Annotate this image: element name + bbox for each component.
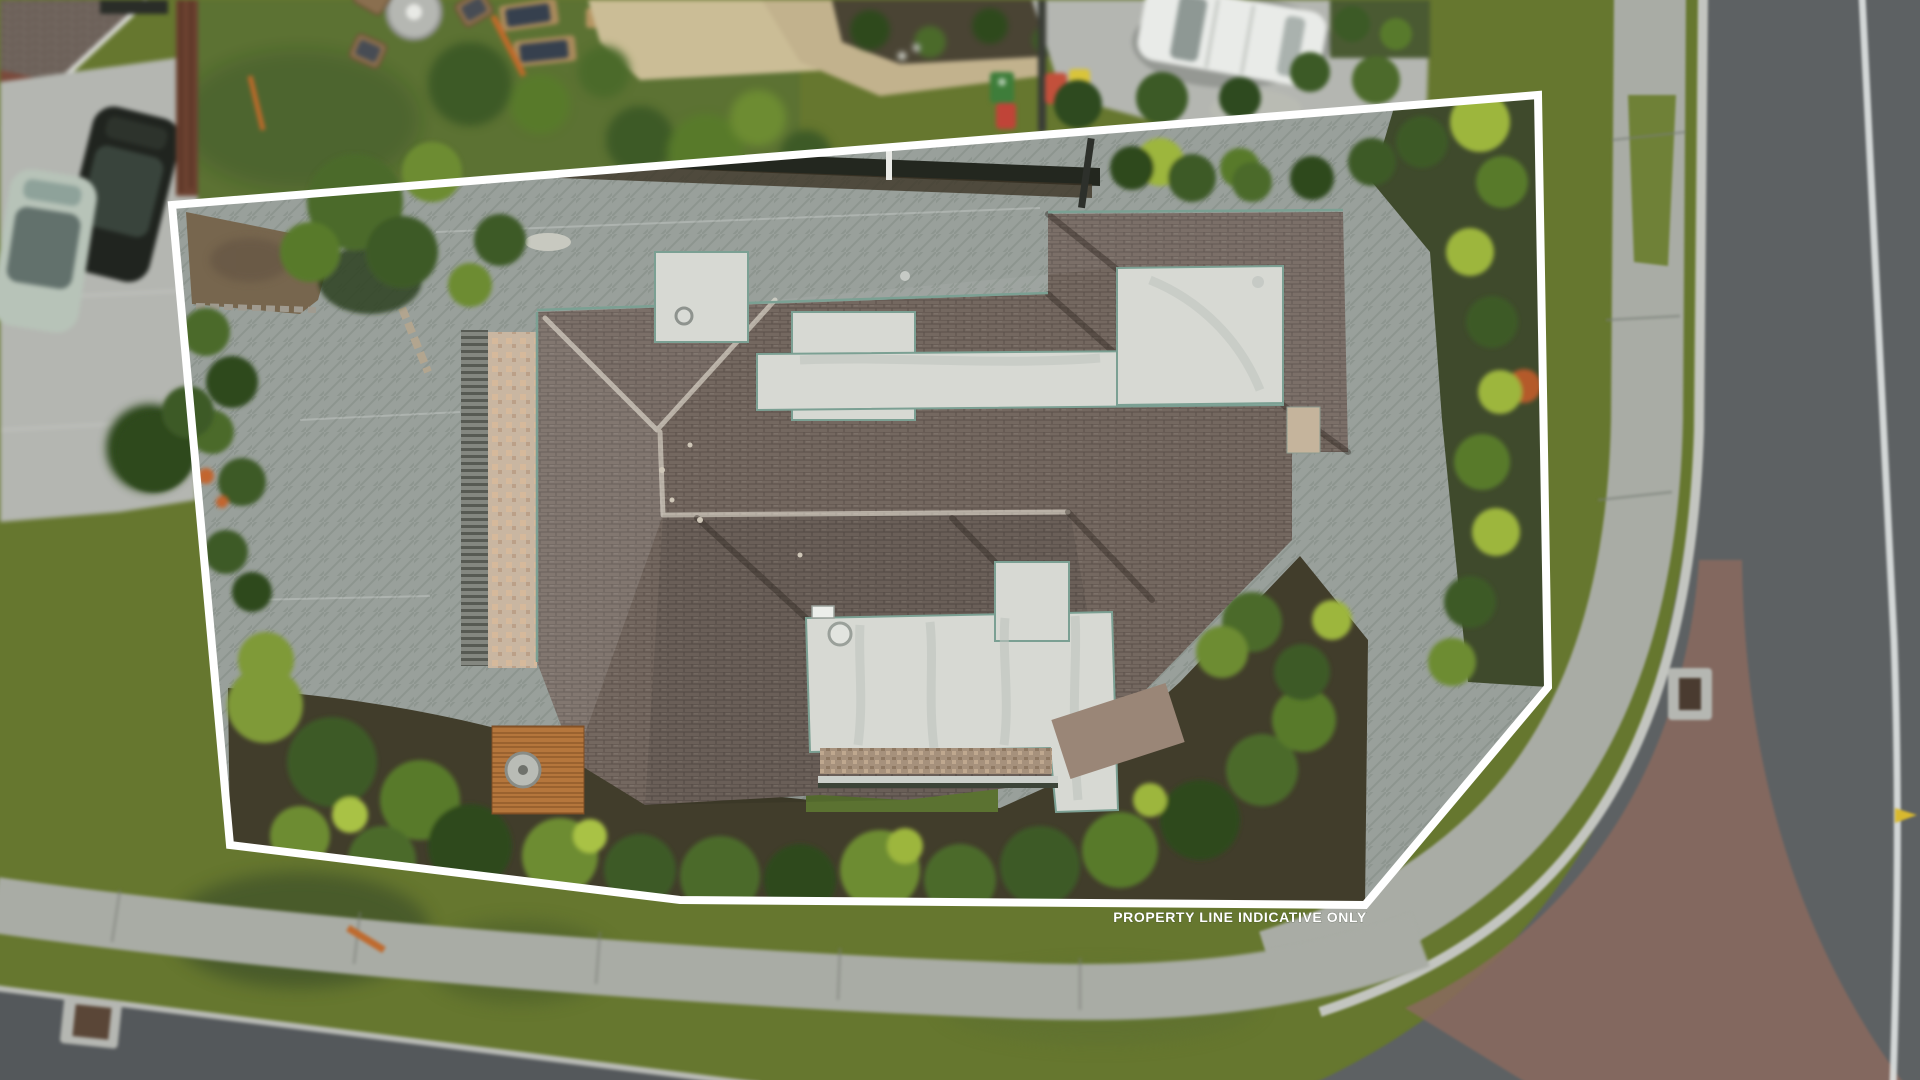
manhole (1679, 678, 1701, 710)
fence-post (1038, 0, 1046, 132)
roof-vent (829, 623, 851, 645)
grass-wedge (1628, 95, 1676, 266)
property-line-label: PROPERTY LINE INDICATIVE ONLY (1113, 909, 1367, 925)
deck-rail (818, 776, 1058, 783)
terrace-railing (461, 330, 488, 666)
chimney (1287, 407, 1320, 453)
aerial-scene: PROPERTY LINE INDICATIVE ONLY (0, 0, 1920, 1080)
roof-vent (676, 308, 692, 324)
aerial-property-photo: PROPERTY LINE INDICATIVE ONLY (0, 0, 1920, 1080)
terrace-floor (488, 332, 537, 668)
storm-drain (72, 1004, 111, 1040)
timber-fence (176, 0, 198, 196)
gravel-patch (525, 233, 571, 251)
deck-mosaic (820, 748, 1052, 774)
